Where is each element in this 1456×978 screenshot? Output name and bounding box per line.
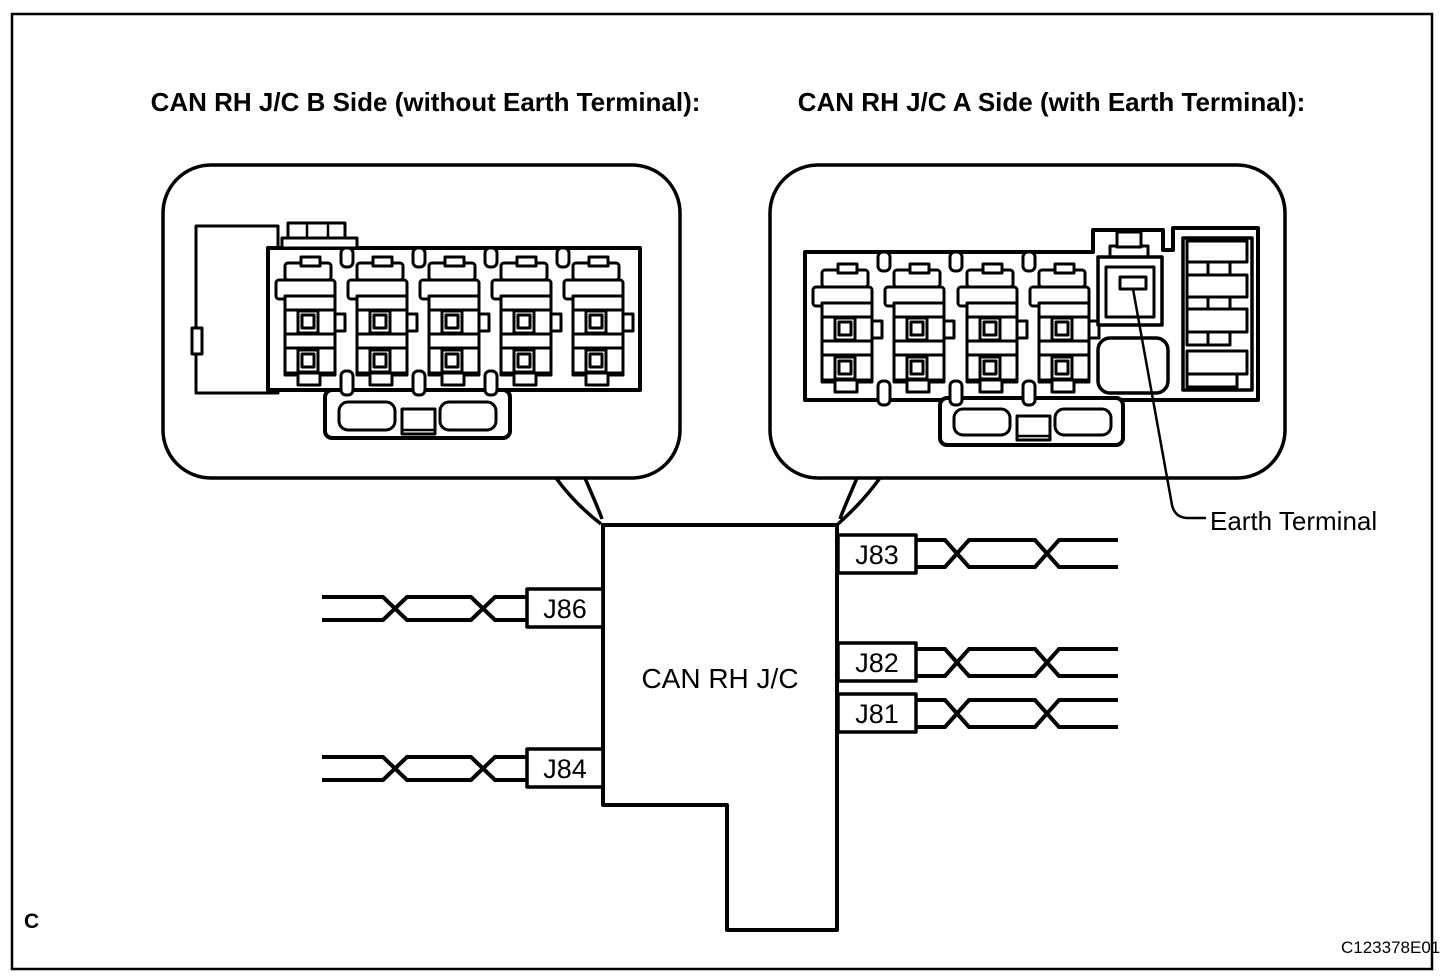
- wire-label-j84: J84: [543, 754, 587, 784]
- page-frame: [12, 14, 1432, 969]
- b-side-latch-housing: [325, 390, 510, 438]
- wire-label-j86: J86: [543, 594, 587, 624]
- twisted-pair-j84: [322, 757, 527, 780]
- wire-label-j83: J83: [855, 540, 899, 570]
- wiring-diagram-canvas: CAN RH J/C J86 J84 J83 J82 J81: [0, 0, 1456, 978]
- b-side-connector-drawing: [163, 165, 680, 524]
- earth-terminal-label: Earth Terminal: [1210, 506, 1377, 537]
- junction-block-label: CAN RH J/C: [641, 663, 798, 694]
- a-side-title: CAN RH J/C A Side (with Earth Terminal):: [783, 87, 1320, 118]
- junction-block-schematic: CAN RH J/C J86 J84 J83 J82 J81: [322, 525, 1118, 930]
- twisted-pair-j83: [915, 540, 1118, 567]
- wire-label-j82: J82: [855, 648, 899, 678]
- figure-code: C123378E01: [1341, 938, 1440, 958]
- twisted-pair-j86: [322, 597, 527, 620]
- a-side-connector-drawing: [770, 165, 1285, 524]
- twisted-pair-j81: [915, 700, 1118, 727]
- junction-block-outline: [603, 525, 837, 930]
- a-side-pointer-line: [838, 478, 880, 524]
- twisted-pair-j82: [915, 649, 1118, 676]
- diagram-page: CAN RH J/C J86 J84 J83 J82 J81 CAN RH J/…: [0, 0, 1456, 978]
- b-side-title: CAN RH J/C B Side (without Earth Termina…: [133, 87, 718, 118]
- wire-label-j81: J81: [855, 699, 899, 729]
- a-side-lock-comb: [1183, 238, 1252, 390]
- corner-letter: C: [24, 910, 39, 934]
